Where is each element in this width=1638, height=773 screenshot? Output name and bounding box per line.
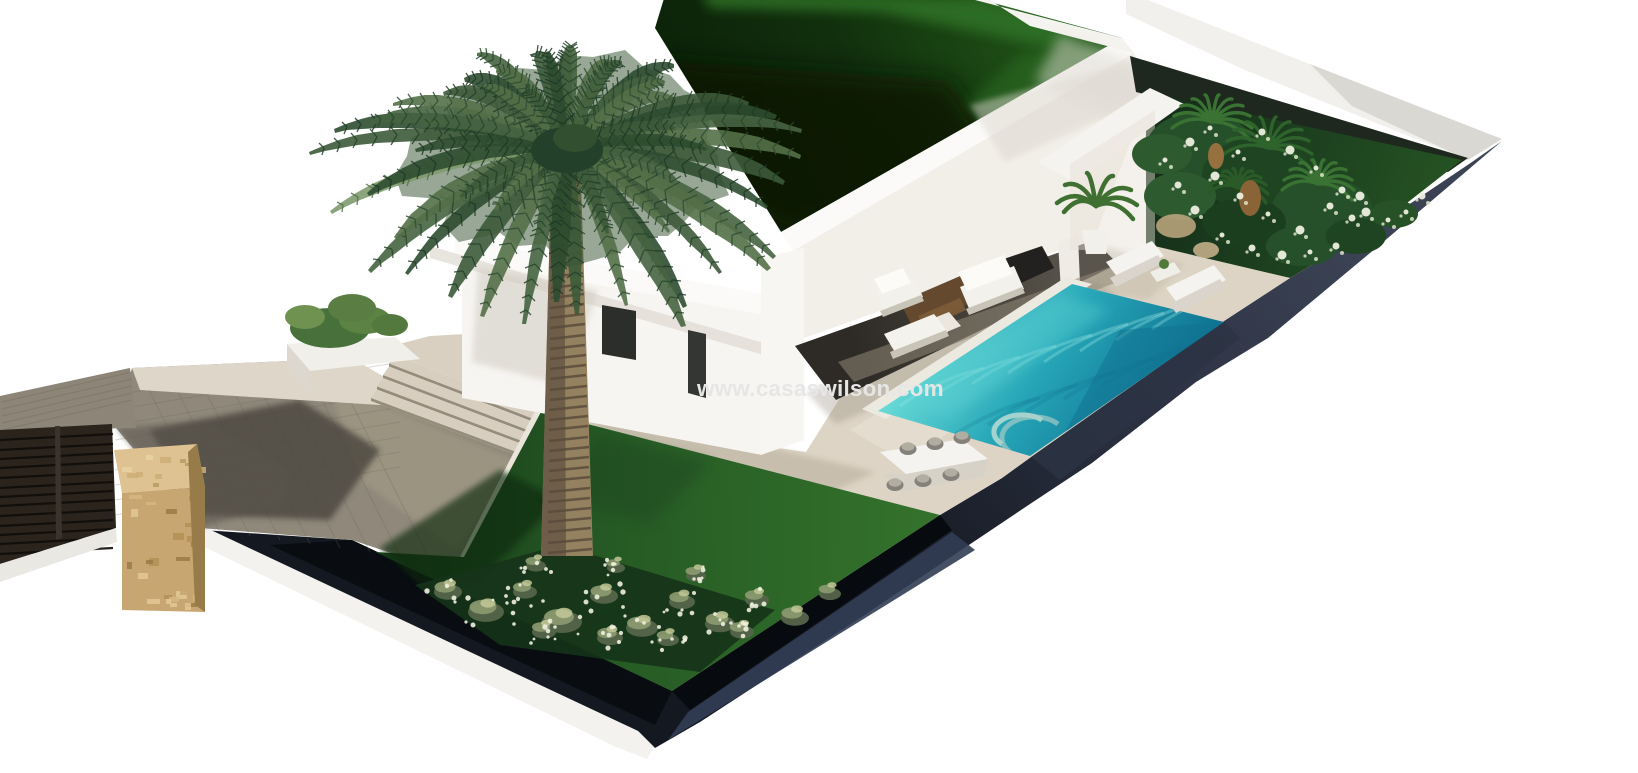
svg-text:www.casaswilson.com: www.casaswilson.com bbox=[696, 376, 944, 401]
